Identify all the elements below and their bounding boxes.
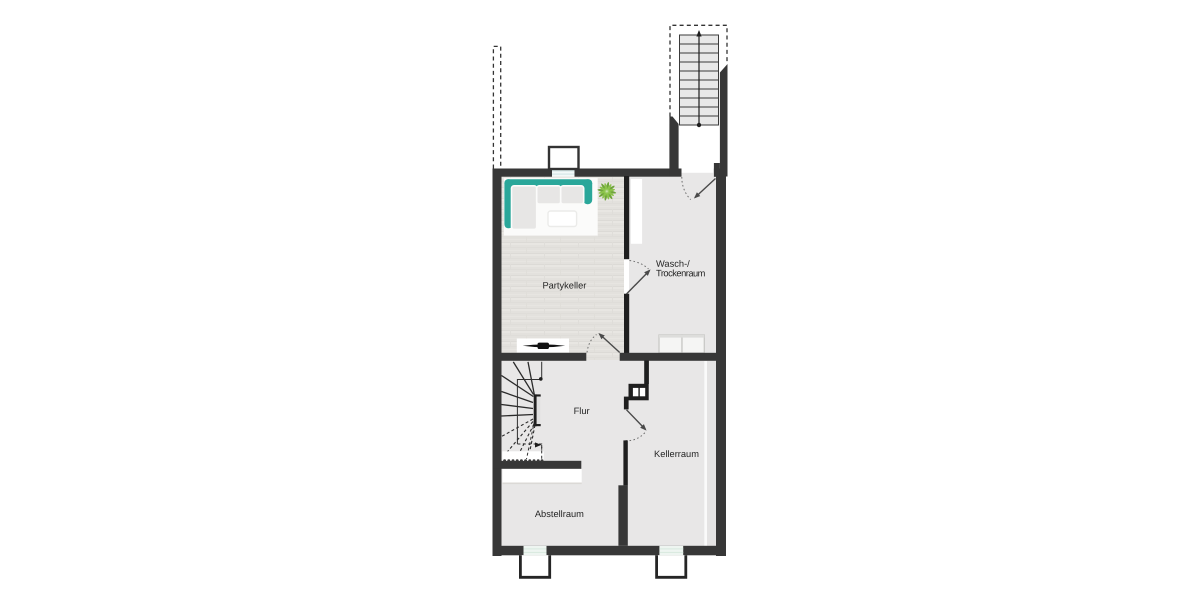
svg-text:Flur: Flur — [574, 406, 590, 416]
svg-text:Trockenraum: Trockenraum — [656, 268, 706, 278]
svg-text:Kellerraum: Kellerraum — [654, 449, 699, 459]
svg-text:Partykeller: Partykeller — [542, 280, 586, 290]
svg-text:Abstellraum: Abstellraum — [535, 509, 584, 519]
